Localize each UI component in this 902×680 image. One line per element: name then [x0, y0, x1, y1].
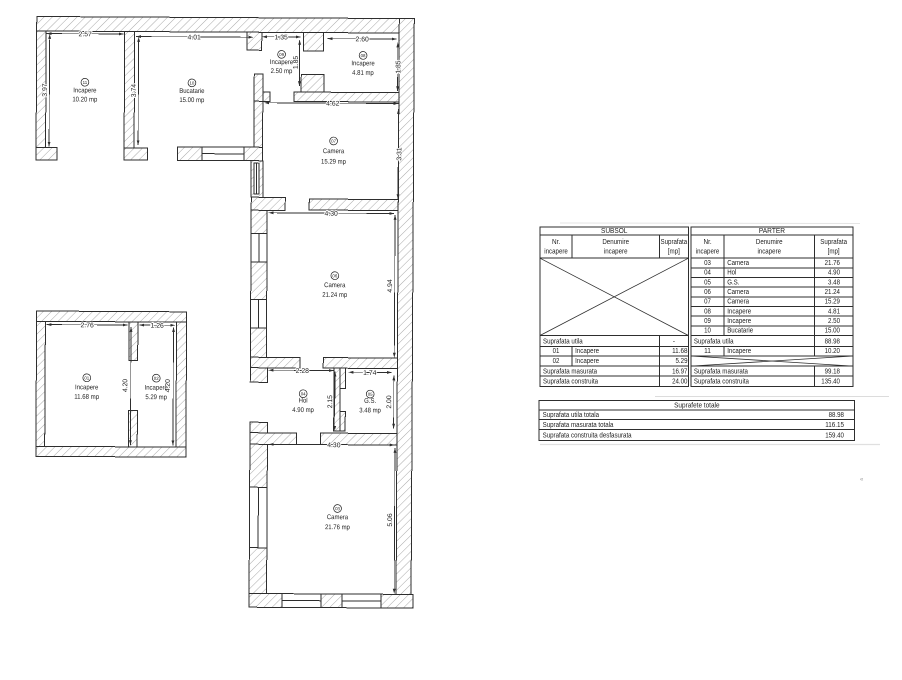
svg-text:Bucatarie: Bucatarie: [727, 328, 753, 335]
svg-text:02: 02: [553, 358, 560, 365]
svg-text:11.68: 11.68: [672, 348, 687, 355]
svg-text:4.30: 4.30: [327, 442, 340, 449]
svg-text:incapere: incapere: [544, 249, 568, 256]
svg-text:4.62: 4.62: [326, 101, 339, 108]
svg-text:[mp]: [mp]: [828, 249, 840, 256]
svg-text:4.81: 4.81: [828, 308, 840, 315]
svg-text:03: 03: [704, 260, 711, 267]
svg-text:Suprafata masurata: Suprafata masurata: [543, 368, 597, 375]
svg-text:4.90: 4.90: [828, 270, 840, 277]
svg-text:15.00: 15.00: [825, 328, 840, 335]
svg-text:02: 02: [154, 376, 159, 381]
svg-text:Incapere: Incapere: [575, 358, 599, 365]
svg-text:5.29: 5.29: [676, 358, 688, 365]
svg-text:SUBSOL: SUBSOL: [601, 226, 627, 235]
svg-text:Suprafata masurata totala: Suprafata masurata totala: [543, 422, 614, 429]
svg-text:07: 07: [704, 299, 711, 306]
svg-text:Hol: Hol: [299, 397, 308, 404]
svg-text:incapere: incapere: [604, 249, 628, 256]
svg-text:2.00: 2.00: [386, 395, 393, 408]
svg-text:09: 09: [279, 52, 284, 57]
svg-text:Nr.: Nr.: [703, 239, 711, 246]
svg-text:135.40: 135.40: [821, 378, 840, 385]
svg-text:11.68 mp: 11.68 mp: [74, 394, 99, 401]
svg-text:01: 01: [553, 348, 560, 355]
svg-text:Incapere: Incapere: [270, 59, 294, 66]
svg-text:Incapere: Incapere: [727, 348, 751, 355]
svg-text:2.76: 2.76: [81, 322, 94, 329]
svg-text:Incapere: Incapere: [73, 87, 97, 94]
svg-text:incapere: incapere: [757, 249, 781, 256]
svg-text:11: 11: [704, 348, 711, 355]
svg-text:G.S.: G.S.: [364, 398, 376, 405]
svg-text:04: 04: [704, 270, 711, 277]
svg-text:116.15: 116.15: [825, 422, 844, 429]
svg-text:1.35: 1.35: [275, 34, 288, 41]
svg-text:4.01: 4.01: [188, 34, 201, 41]
svg-text:2.57: 2.57: [79, 31, 92, 38]
svg-text:Suprafata: Suprafata: [820, 239, 847, 246]
svg-text:Suprafata construita: Suprafata construita: [694, 378, 749, 385]
svg-text:88.98: 88.98: [825, 338, 840, 345]
svg-text:10.20 mp: 10.20 mp: [72, 96, 97, 103]
svg-text:10: 10: [189, 81, 194, 86]
svg-text:Camera: Camera: [323, 148, 345, 155]
svg-text:05: 05: [368, 392, 373, 397]
svg-text:01: 01: [84, 375, 89, 380]
svg-text:1.26: 1.26: [151, 323, 164, 330]
svg-text:3.48: 3.48: [828, 279, 840, 286]
svg-text:Denumire: Denumire: [756, 239, 783, 246]
svg-text:3.48 mp: 3.48 mp: [359, 407, 381, 414]
svg-text:10: 10: [704, 328, 711, 335]
svg-text:Incapere: Incapere: [145, 385, 169, 392]
svg-text:Incapere: Incapere: [727, 308, 751, 315]
svg-text:Camera: Camera: [327, 514, 349, 521]
svg-text:incapere: incapere: [696, 249, 720, 256]
svg-text:10.20: 10.20: [825, 348, 840, 355]
svg-text:PARTER: PARTER: [759, 226, 785, 235]
svg-text:Suprafata utila totala: Suprafata utila totala: [543, 412, 600, 419]
svg-text:1.74: 1.74: [363, 370, 376, 377]
svg-text:3.74: 3.74: [131, 84, 138, 97]
svg-text:Camera: Camera: [727, 299, 749, 306]
svg-text:2.15: 2.15: [327, 395, 334, 408]
svg-text:04: 04: [301, 391, 306, 396]
svg-text:03: 03: [335, 506, 340, 511]
svg-text:3.97: 3.97: [42, 83, 49, 96]
svg-text:Suprafata utila: Suprafata utila: [694, 338, 734, 345]
svg-text:Incapere: Incapere: [727, 318, 751, 325]
svg-text:Nr.: Nr.: [552, 239, 560, 246]
svg-text:09: 09: [704, 318, 711, 325]
svg-text:05: 05: [704, 279, 711, 286]
svg-text:Bucatarie: Bucatarie: [179, 88, 205, 95]
svg-text:2.50 mp: 2.50 mp: [271, 68, 293, 75]
svg-text:11: 11: [83, 80, 88, 85]
svg-text:08: 08: [361, 53, 366, 58]
svg-text:15.29: 15.29: [825, 299, 840, 306]
svg-text:4.20: 4.20: [122, 379, 129, 392]
svg-text:3.31: 3.31: [396, 147, 403, 160]
svg-text:1.85: 1.85: [395, 60, 402, 73]
svg-text:G.S.: G.S.: [727, 279, 739, 286]
svg-text:21.76: 21.76: [825, 260, 840, 267]
svg-text:[mp]: [mp]: [668, 249, 680, 256]
svg-text:Camera: Camera: [727, 260, 749, 267]
svg-text:16.97: 16.97: [672, 368, 687, 375]
svg-text:15.00 mp: 15.00 mp: [179, 97, 204, 104]
svg-text:5.06: 5.06: [387, 513, 394, 526]
svg-text:1.85: 1.85: [293, 56, 300, 69]
svg-text:4.30: 4.30: [325, 211, 338, 218]
svg-text:5.29 mp: 5.29 mp: [145, 394, 167, 401]
svg-text:Denumire: Denumire: [602, 239, 629, 246]
svg-text:07: 07: [331, 139, 336, 144]
svg-text:2.50: 2.50: [828, 318, 840, 325]
svg-text:159.40: 159.40: [825, 433, 844, 440]
svg-text:06: 06: [704, 289, 711, 296]
svg-text:Suprafata construita desfasura: Suprafata construita desfasurata: [543, 433, 632, 440]
svg-text:99.18: 99.18: [825, 368, 840, 375]
svg-text:4.90 mp: 4.90 mp: [292, 407, 314, 414]
svg-text:2.60: 2.60: [356, 36, 369, 43]
svg-text:Camera: Camera: [324, 282, 346, 289]
svg-text:08: 08: [704, 308, 711, 315]
svg-text:Suprafata: Suprafata: [661, 239, 688, 246]
svg-text:06: 06: [332, 273, 337, 278]
svg-text:15.29 mp: 15.29 mp: [321, 159, 346, 166]
svg-text:21.76 mp: 21.76 mp: [325, 524, 350, 531]
svg-text:88.98: 88.98: [829, 412, 844, 419]
svg-text:Incapere: Incapere: [75, 384, 99, 391]
svg-text:Suprafata utila: Suprafata utila: [543, 338, 583, 345]
svg-text:Suprafata masurata: Suprafata masurata: [694, 368, 748, 375]
svg-text:Hol: Hol: [727, 270, 737, 277]
svg-text:21.24: 21.24: [825, 289, 840, 296]
svg-text:Suprafata construita: Suprafata construita: [543, 378, 598, 385]
svg-text:Camera: Camera: [727, 289, 749, 296]
svg-text:24.00: 24.00: [672, 378, 687, 385]
svg-text:4.94: 4.94: [387, 279, 394, 292]
svg-text:Incapere: Incapere: [351, 60, 375, 67]
svg-text:4.81 mp: 4.81 mp: [352, 70, 374, 77]
svg-text:2.28: 2.28: [296, 368, 309, 375]
svg-text:Incapere: Incapere: [575, 348, 599, 355]
svg-text:Suprafete totale: Suprafete totale: [674, 401, 719, 410]
svg-text:21.24 mp: 21.24 mp: [322, 292, 347, 299]
